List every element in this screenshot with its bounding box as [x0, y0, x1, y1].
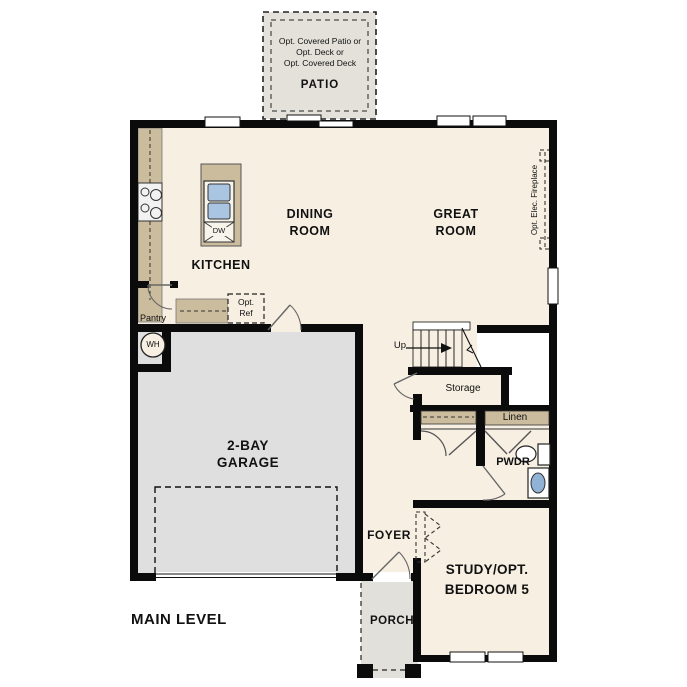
- pwdr-label: PWDR: [496, 456, 530, 469]
- storage-label: Storage: [445, 383, 480, 395]
- patio-notes: Opt. Covered Patio or Opt. Deck or Opt. …: [263, 36, 377, 69]
- garage-entry-door: [268, 305, 301, 330]
- page-title: MAIN LEVEL: [131, 611, 227, 628]
- stove-icon: [138, 183, 162, 221]
- porch-details: [357, 583, 421, 678]
- sliding-door-icon: [287, 115, 321, 121]
- garage-label: 2-BAY GARAGE: [217, 437, 279, 471]
- pwdr-sink-icon: [528, 468, 549, 498]
- garage-door-outline: [155, 487, 337, 581]
- fireplace-label: Opt. Elec. Fireplace: [530, 150, 542, 250]
- pwdr-door: [483, 466, 505, 500]
- window-icon: [548, 268, 558, 304]
- window-icon: [473, 116, 506, 126]
- foyer-label: FOYER: [367, 529, 411, 543]
- study-label: STUDY/OPT. BEDROOM 5: [445, 560, 529, 600]
- porch-post: [357, 664, 373, 678]
- garage-door-opening: [156, 572, 336, 582]
- kitchen-counters: [138, 128, 264, 323]
- opt-ref-label: Opt. Ref: [238, 297, 254, 319]
- porch-post: [405, 664, 421, 678]
- floorplan-graphics: [0, 0, 687, 687]
- pantry-label: Pantry: [140, 313, 166, 323]
- patio-label: PATIO: [301, 79, 339, 92]
- up-label: Up: [394, 341, 406, 352]
- front-door-opening: [373, 572, 411, 582]
- porch-label: PORCH: [370, 615, 414, 628]
- floorplan-main-level: Opt. Covered Patio or Opt. Deck or Opt. …: [0, 0, 687, 687]
- study-french-doors-optional: [416, 512, 441, 562]
- wh-label: WH: [146, 340, 159, 349]
- dining-room-label: DINING ROOM: [287, 206, 334, 240]
- window-icon: [450, 652, 485, 662]
- window-icon: [205, 117, 240, 127]
- great-room-label: GREAT ROOM: [433, 206, 478, 240]
- window-icon: [488, 652, 523, 662]
- coat-closet-shelf: [421, 411, 476, 424]
- kitchen-label: KITCHEN: [191, 258, 250, 272]
- linen-label: Linen: [503, 412, 527, 424]
- window-icon: [437, 116, 470, 126]
- pwdr-fixtures: [516, 444, 550, 498]
- dw-label: DW: [212, 227, 227, 236]
